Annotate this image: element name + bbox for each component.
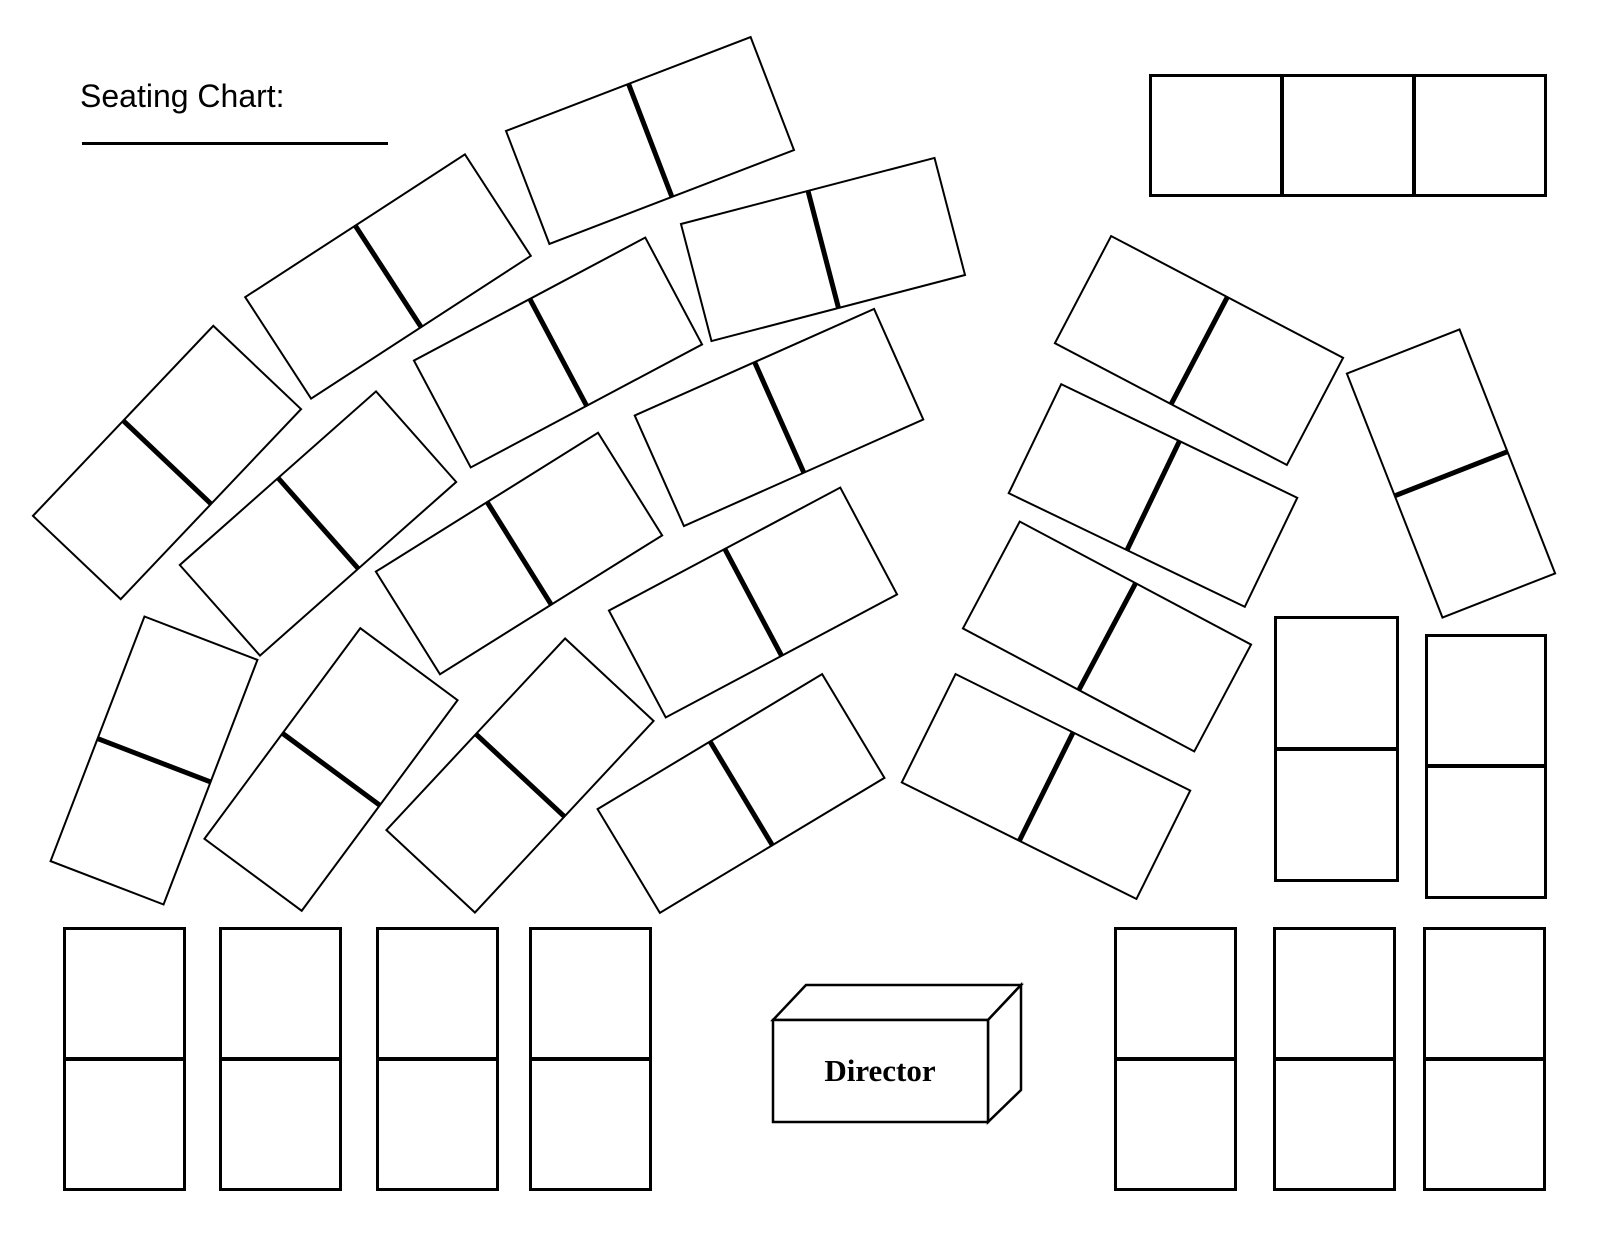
bottom-left-seat-pair [529,927,652,1191]
seat-divider [97,736,212,784]
seat-divider [474,732,566,818]
fan-seat-pair [49,615,258,906]
seat-divider [1169,295,1229,404]
bottom-left-seat-pair [219,927,342,1191]
back-table-cell [1280,77,1412,194]
seat-divider [1425,1057,1544,1061]
director-box-top [773,985,1021,1020]
seat-divider [378,1057,497,1061]
seat-divider [806,190,841,308]
seat-divider [708,740,774,846]
seat-divider [353,224,423,328]
back-table-cell [1152,77,1280,194]
seat-divider [723,548,784,657]
director-label: Director [824,1053,936,1088]
seat-divider [1116,1057,1235,1061]
seat-divider [276,476,360,570]
bottom-right-seat-pair [1423,927,1546,1191]
fan-seat-pair [680,156,966,342]
seat-divider [1394,449,1508,497]
bottom-left-seat-pair [376,927,499,1191]
right-column-seat-pair [1274,616,1399,882]
seat-divider [65,1057,184,1061]
seat-divider [1276,747,1397,751]
bottom-left-seat-pair [63,927,186,1191]
seat-divider [485,501,553,606]
back-table [1149,74,1547,197]
back-table-cell [1412,77,1544,194]
seat-divider [1275,1057,1394,1061]
bottom-right-seat-pair [1114,927,1237,1191]
seat-divider [281,731,381,807]
page-title: Seating Chart: [80,80,285,112]
seat-divider [528,298,589,407]
seat-divider [1427,764,1545,768]
seat-divider [752,361,805,473]
seat-divider [122,419,213,506]
seat-divider [531,1057,650,1061]
fan-seat-pair [1346,328,1557,619]
seat-divider [221,1057,340,1061]
director-podium: Director [755,970,1045,1140]
bottom-right-seat-pair [1273,927,1396,1191]
seat-divider [1077,582,1138,691]
right-column-seat-pair [1425,634,1547,899]
seat-divider [1125,440,1182,551]
seat-divider [626,83,674,198]
seating-chart-page: Seating Chart: Director [0,0,1600,1237]
title-underline [82,142,388,145]
seat-divider [1017,731,1075,841]
